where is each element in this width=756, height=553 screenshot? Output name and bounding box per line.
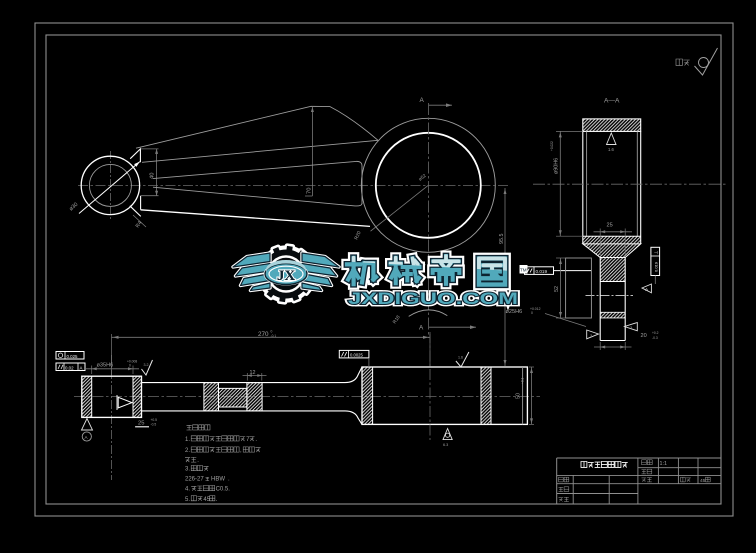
- svg-text:0.019: 0.019: [654, 261, 659, 272]
- svg-text:0.025: 0.025: [67, 354, 79, 359]
- svg-text:226-27: 226-27: [185, 477, 204, 483]
- svg-text:JXDIGUO.COM: JXDIGUO.COM: [348, 290, 518, 308]
- svg-text:-0.3: -0.3: [652, 336, 658, 340]
- svg-text:3.: 3.: [185, 467, 190, 473]
- svg-text:HBW: HBW: [211, 477, 225, 483]
- svg-text:A—A: A—A: [604, 98, 620, 105]
- svg-text:1:1: 1:1: [660, 461, 668, 467]
- svg-text:0.0025: 0.0025: [350, 353, 363, 358]
- svg-text:3.2: 3.2: [144, 363, 149, 367]
- svg-text:0: 0: [531, 311, 533, 315]
- svg-text:25: 25: [607, 223, 613, 229]
- svg-text:TM: TM: [520, 268, 527, 273]
- svg-text:+0.1: +0.1: [521, 377, 525, 384]
- svg-text:50: 50: [516, 393, 522, 399]
- svg-text:2.: 2.: [185, 448, 190, 454]
- svg-text:-0.1: -0.1: [271, 334, 277, 338]
- svg-text:A: A: [419, 325, 424, 332]
- svg-text:⊥: ⊥: [654, 251, 659, 255]
- svg-text:70: 70: [307, 188, 313, 194]
- svg-text:-0.5: -0.5: [151, 422, 157, 426]
- svg-text:JX: JX: [277, 268, 296, 284]
- svg-text:1.: 1.: [185, 437, 190, 443]
- svg-text:+0.5: +0.5: [151, 418, 158, 422]
- svg-text:A: A: [80, 365, 83, 370]
- svg-text:C0.5.: C0.5.: [216, 487, 231, 493]
- svg-text:95.5: 95.5: [499, 234, 505, 245]
- svg-text:20: 20: [641, 333, 647, 339]
- svg-text:1.6: 1.6: [458, 356, 463, 360]
- svg-text:ø25H6: ø25H6: [506, 309, 523, 315]
- svg-text:270: 270: [258, 331, 269, 338]
- svg-text:A: A: [420, 97, 425, 104]
- svg-text:+0.022: +0.022: [550, 141, 554, 151]
- svg-text:0: 0: [129, 364, 131, 368]
- svg-text:52: 52: [554, 286, 560, 292]
- svg-text:1.6: 1.6: [608, 147, 614, 152]
- svg-text:45: 45: [700, 478, 706, 484]
- svg-text:5.: 5.: [185, 497, 190, 503]
- svg-text:+0.2: +0.2: [652, 331, 659, 335]
- svg-text:0: 0: [271, 329, 273, 333]
- svg-text:ø35H6: ø35H6: [97, 363, 114, 369]
- svg-text:0.02: 0.02: [65, 365, 74, 370]
- svg-text:12: 12: [250, 370, 256, 376]
- svg-text:6.3: 6.3: [443, 443, 448, 447]
- svg-text:4.: 4.: [185, 487, 190, 493]
- svg-text:ø90H6: ø90H6: [554, 158, 560, 174]
- svg-text:0.019: 0.019: [536, 269, 548, 274]
- svg-text:25: 25: [138, 421, 144, 427]
